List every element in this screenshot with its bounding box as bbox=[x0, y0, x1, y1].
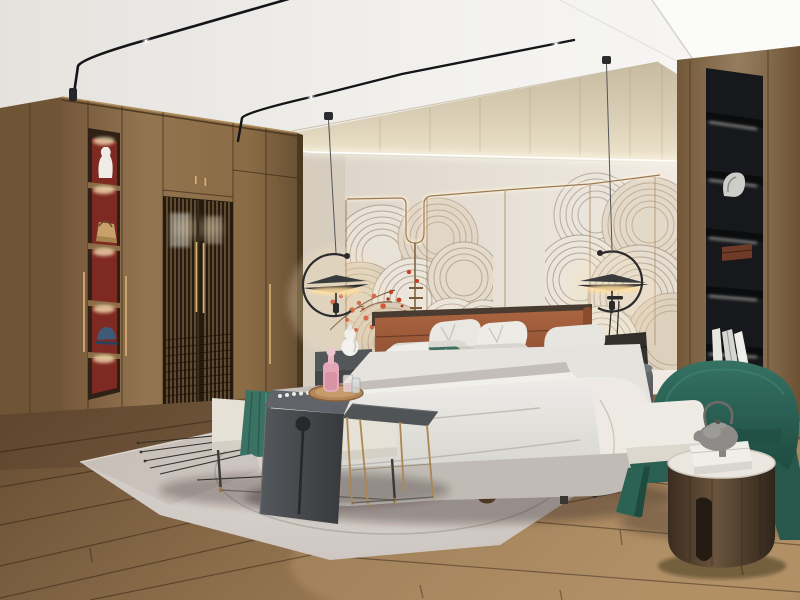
waterfall-table bbox=[260, 390, 352, 524]
display-niches bbox=[88, 128, 120, 400]
glasses bbox=[343, 375, 360, 393]
shelf-column bbox=[706, 68, 763, 390]
drum-cutout bbox=[696, 497, 712, 561]
lattice-doors bbox=[163, 176, 233, 414]
scene-canvas bbox=[0, 0, 800, 600]
bedroom-render bbox=[0, 0, 800, 600]
pendant-canopy-left bbox=[324, 112, 333, 120]
niche-handbag bbox=[96, 221, 117, 243]
pendant-canopy-right bbox=[602, 56, 611, 64]
